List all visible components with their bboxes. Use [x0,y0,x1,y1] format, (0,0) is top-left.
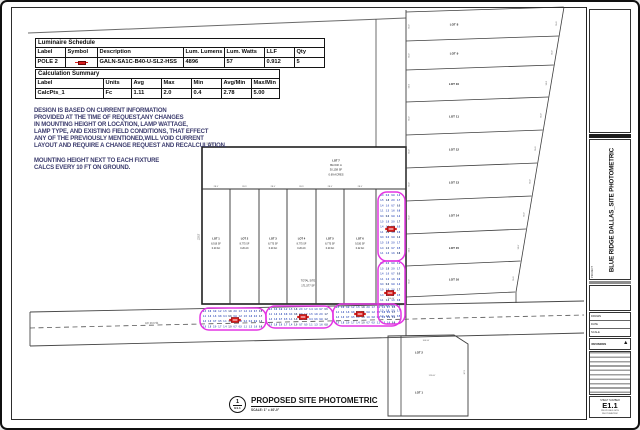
lum-table-header-cell: Lum. Watts [224,48,264,57]
calc-table-data-cell: CalcPts_1 [36,89,103,98]
note-line: IN MOUNTING HEIGHT OR LOCATION, LAMP WAT… [34,122,239,129]
note-line [34,151,239,158]
title-block: BLUE RIDGE DALLAS_SITE PHOTOMETRIC PROJE… [586,7,633,420]
lum-table-header-cell: Lum. Lumens [183,48,224,57]
fixture-symbol-wing [86,62,89,64]
calc-table-data-cell: Fc [103,89,131,98]
lum-table-header-cell: LLF [264,48,294,57]
lum-table-data-cell: POLE 2 [36,58,65,67]
fixture-symbol-icon [65,58,97,67]
title-block-field-row: DATE [590,321,630,329]
title-block-divider [589,134,631,138]
calc-table-data-cell: 2.78 [221,89,251,98]
calc-table-header-cell: Label [36,79,103,88]
calc-table-header-cell: Avg [131,79,161,88]
note-line: LAMP TYPE, AND EXISTING FIELD CONDITIONS… [34,129,239,136]
calc-table-title: Calculation Summary [36,70,279,78]
revision-label: REVISIONS [592,343,607,346]
title-block-logo-area [589,9,631,133]
calc-table-header-cell: Min [191,79,221,88]
lum-table-data-cell: 0.912 [264,58,294,67]
lum-table-header-row: LabelSymbolDescriptionLum. LumensLum. Wa… [36,47,324,57]
title-block-stamp-area [589,285,631,311]
lum-table-header-cell: Symbol [65,48,97,57]
project-label: PROJECT [591,266,594,278]
calc-table-data-cell: 5.00 [251,89,279,98]
lum-table-data-cell: 57 [224,58,264,67]
calc-table-header-cell: Max/Min [251,79,279,88]
detail-sheet-ref: E1.1 [234,406,240,411]
note-line: PROVIDED AT THE TIME OF REQUEST,ANY CHAN… [34,115,239,122]
note-line: MOUNTING HEIGHT NEXT TO EACH FIXTURE [34,158,239,165]
fixture-symbol-box [78,61,86,65]
field-label: DRAWN [591,315,601,318]
note-line: LAYOUT AND REQUIRE A CHANGE REQUEST AND … [34,143,239,150]
title-block-field-row: SCALE [590,329,630,336]
detail-scale: SCALE: 1" = 40'-0" [251,408,378,412]
lum-table-data-row: POLE 2GALN-SA1C-B40-U-SL2-HSS4896570.912… [36,57,324,67]
calc-table-data-cell: 2.0 [161,89,191,98]
sheet-caption-line: PHOTOMETRIC [601,413,619,416]
note-line: DESIGN IS BASED ON CURRENT INFORMATION [34,108,239,115]
lum-table-data-cell: 4896 [183,58,224,67]
lum-table-header-cell: Description [97,48,183,57]
title-block-revision-row: REVISIONS ▲ [589,338,631,350]
sheet-caption: PROPOSED SITEPHOTOMETRIC [601,410,619,415]
sheet-number: E1.1 [602,402,617,410]
calc-table-data-cell: 0.4 [191,89,221,98]
note-line: CALCS EVERY 10 FT ON GROUND. [34,165,239,172]
revision-list-hatch [589,351,631,395]
calc-table-header-cell: Max [161,79,191,88]
note-line: ANY OF THE PREVIOUSLY MENTIONED,WILL VOI… [34,136,239,143]
lum-table-header-cell: Qty [294,48,324,57]
detail-bubble: 1 E1.1 [229,396,246,413]
detail-title-label: 1 E1.1 PROPOSED SITE PHOTOMETRIC SCALE: … [229,396,378,413]
lum-table-title: Luminaire Schedule [36,39,324,47]
lum-table-data-cell: 5 [294,58,324,67]
lum-table-data-cell: GALN-SA1C-B40-U-SL2-HSS [97,58,183,67]
title-block-fields: DRAWNDATESCALE [589,312,631,337]
calc-table-data-cell: 1.11 [131,89,161,98]
revision-triangle-icon: ▲ [623,341,628,347]
project-title: BLUE RIDGE DALLAS_SITE PHOTOMETRIC [609,147,616,271]
detail-title: PROPOSED SITE PHOTOMETRIC [251,396,378,407]
calc-table-header-cell: Avg/Min [221,79,251,88]
calculation-summary-table: Calculation SummaryLabelUnitsAvgMaxMinAv… [35,69,280,99]
sheet-number-box: SHEET NUMBER E1.1 PROPOSED SITEPHOTOMETR… [589,396,631,418]
calc-table-header-row: LabelUnitsAvgMaxMinAvg/MinMax/Min [36,78,279,88]
title-block-band [589,281,631,284]
drawing-sheet: LOT 18,919 SF0.20 AC28.5'LOT 28,775 SF0.… [0,0,640,430]
detail-title-group: PROPOSED SITE PHOTOMETRIC SCALE: 1" = 40… [251,396,378,412]
field-label: DATE [591,323,598,326]
lum-table-header-cell: Label [36,48,65,57]
field-label: SCALE [591,331,600,334]
detail-number: 1 [233,399,241,406]
luminaire-schedule-table: Luminaire ScheduleLabelSymbolDescription… [35,38,325,68]
title-block-field-row: DRAWN [590,313,630,321]
title-block-project: BLUE RIDGE DALLAS_SITE PHOTOMETRIC PROJE… [589,139,631,280]
calc-table-header-cell: Units [103,79,131,88]
calc-table-data-row: CalcPts_1Fc1.112.00.42.785.00 [36,88,279,98]
design-notes: DESIGN IS BASED ON CURRENT INFORMATIONPR… [34,108,239,172]
